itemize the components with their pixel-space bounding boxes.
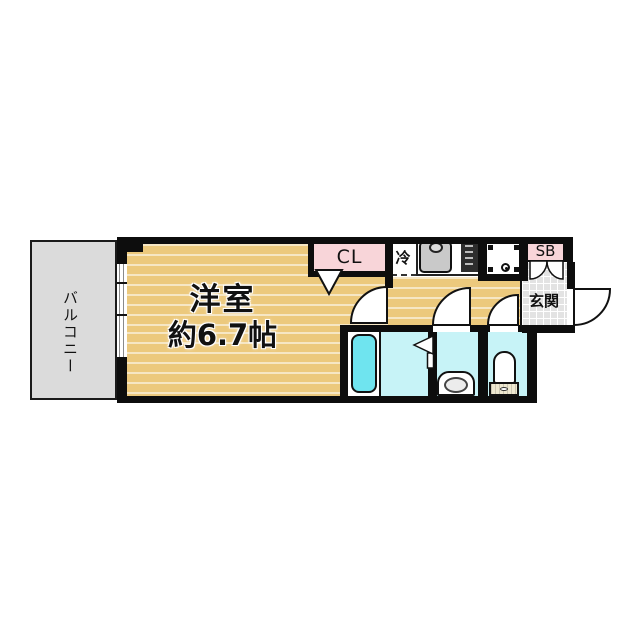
washer-drain-icon (501, 263, 510, 272)
washer-pan-corner (488, 245, 493, 250)
wetroom-wall-top-b (470, 325, 490, 332)
bathroom-wall-left (340, 332, 348, 396)
bathroom-wall-right (428, 332, 437, 396)
window-mullion-tick (117, 282, 127, 284)
stove-grill-marks (465, 245, 473, 269)
washer-wall-bottom (478, 274, 528, 281)
wall-bottom (117, 396, 537, 403)
entrance-swing-door (574, 289, 610, 325)
corridor-kitchen-floor (388, 277, 520, 326)
stove (461, 242, 478, 272)
shoebox-bottom-line (527, 260, 564, 262)
refrigerator-space-dashed-line (391, 274, 417, 276)
closet-label: CL (314, 244, 385, 271)
shoe-box-label: SB (528, 243, 563, 260)
washbasin-bowl (444, 377, 468, 393)
floor-plan: バルコニー 洋室 約6.7帖 CL 冷 SB 玄関 (0, 0, 640, 640)
pillar-top-left (117, 237, 143, 252)
washbasin-vanity (437, 371, 475, 396)
wall-left-lower (117, 357, 127, 403)
washbasin-wall-right (478, 332, 488, 396)
entrance-label: 玄関 (520, 290, 568, 311)
wetroom-wall-top-a (340, 325, 433, 332)
room-size: 約6.7帖 (130, 318, 315, 352)
bathtub (351, 334, 377, 393)
wall-right (567, 262, 575, 289)
kitchen-sink (419, 241, 452, 273)
window-mullion-tick (117, 314, 127, 316)
toilet-bowl (493, 351, 516, 384)
balcony-label: バルコニー (53, 263, 87, 401)
washer-pan-corner (488, 267, 493, 272)
room-label: 洋室 約6.7帖 (130, 282, 315, 352)
refrigerator-label: 冷 (389, 247, 417, 268)
wall-top (117, 237, 573, 244)
toilet-wall-right (527, 332, 537, 403)
toilet-tank (489, 382, 519, 396)
shoebox-wall-right (563, 237, 573, 262)
closet-wall-bottom (308, 271, 393, 277)
bathroom-floor (380, 332, 428, 396)
bathtub-zone-divider (379, 332, 381, 396)
toilet-tank-oval (500, 387, 508, 391)
sliding-window (117, 264, 127, 357)
kitchen-counter-edge (417, 274, 480, 276)
room-name: 洋室 (130, 282, 315, 318)
